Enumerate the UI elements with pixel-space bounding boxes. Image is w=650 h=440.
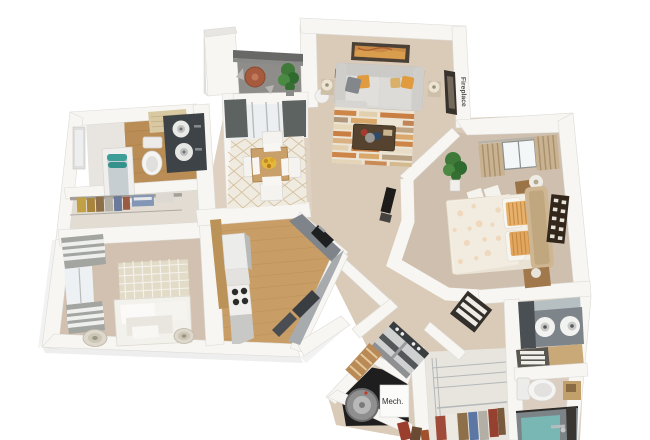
svg-text:Fireplace: Fireplace xyxy=(459,77,467,107)
svg-text:Mech.: Mech. xyxy=(382,397,403,406)
